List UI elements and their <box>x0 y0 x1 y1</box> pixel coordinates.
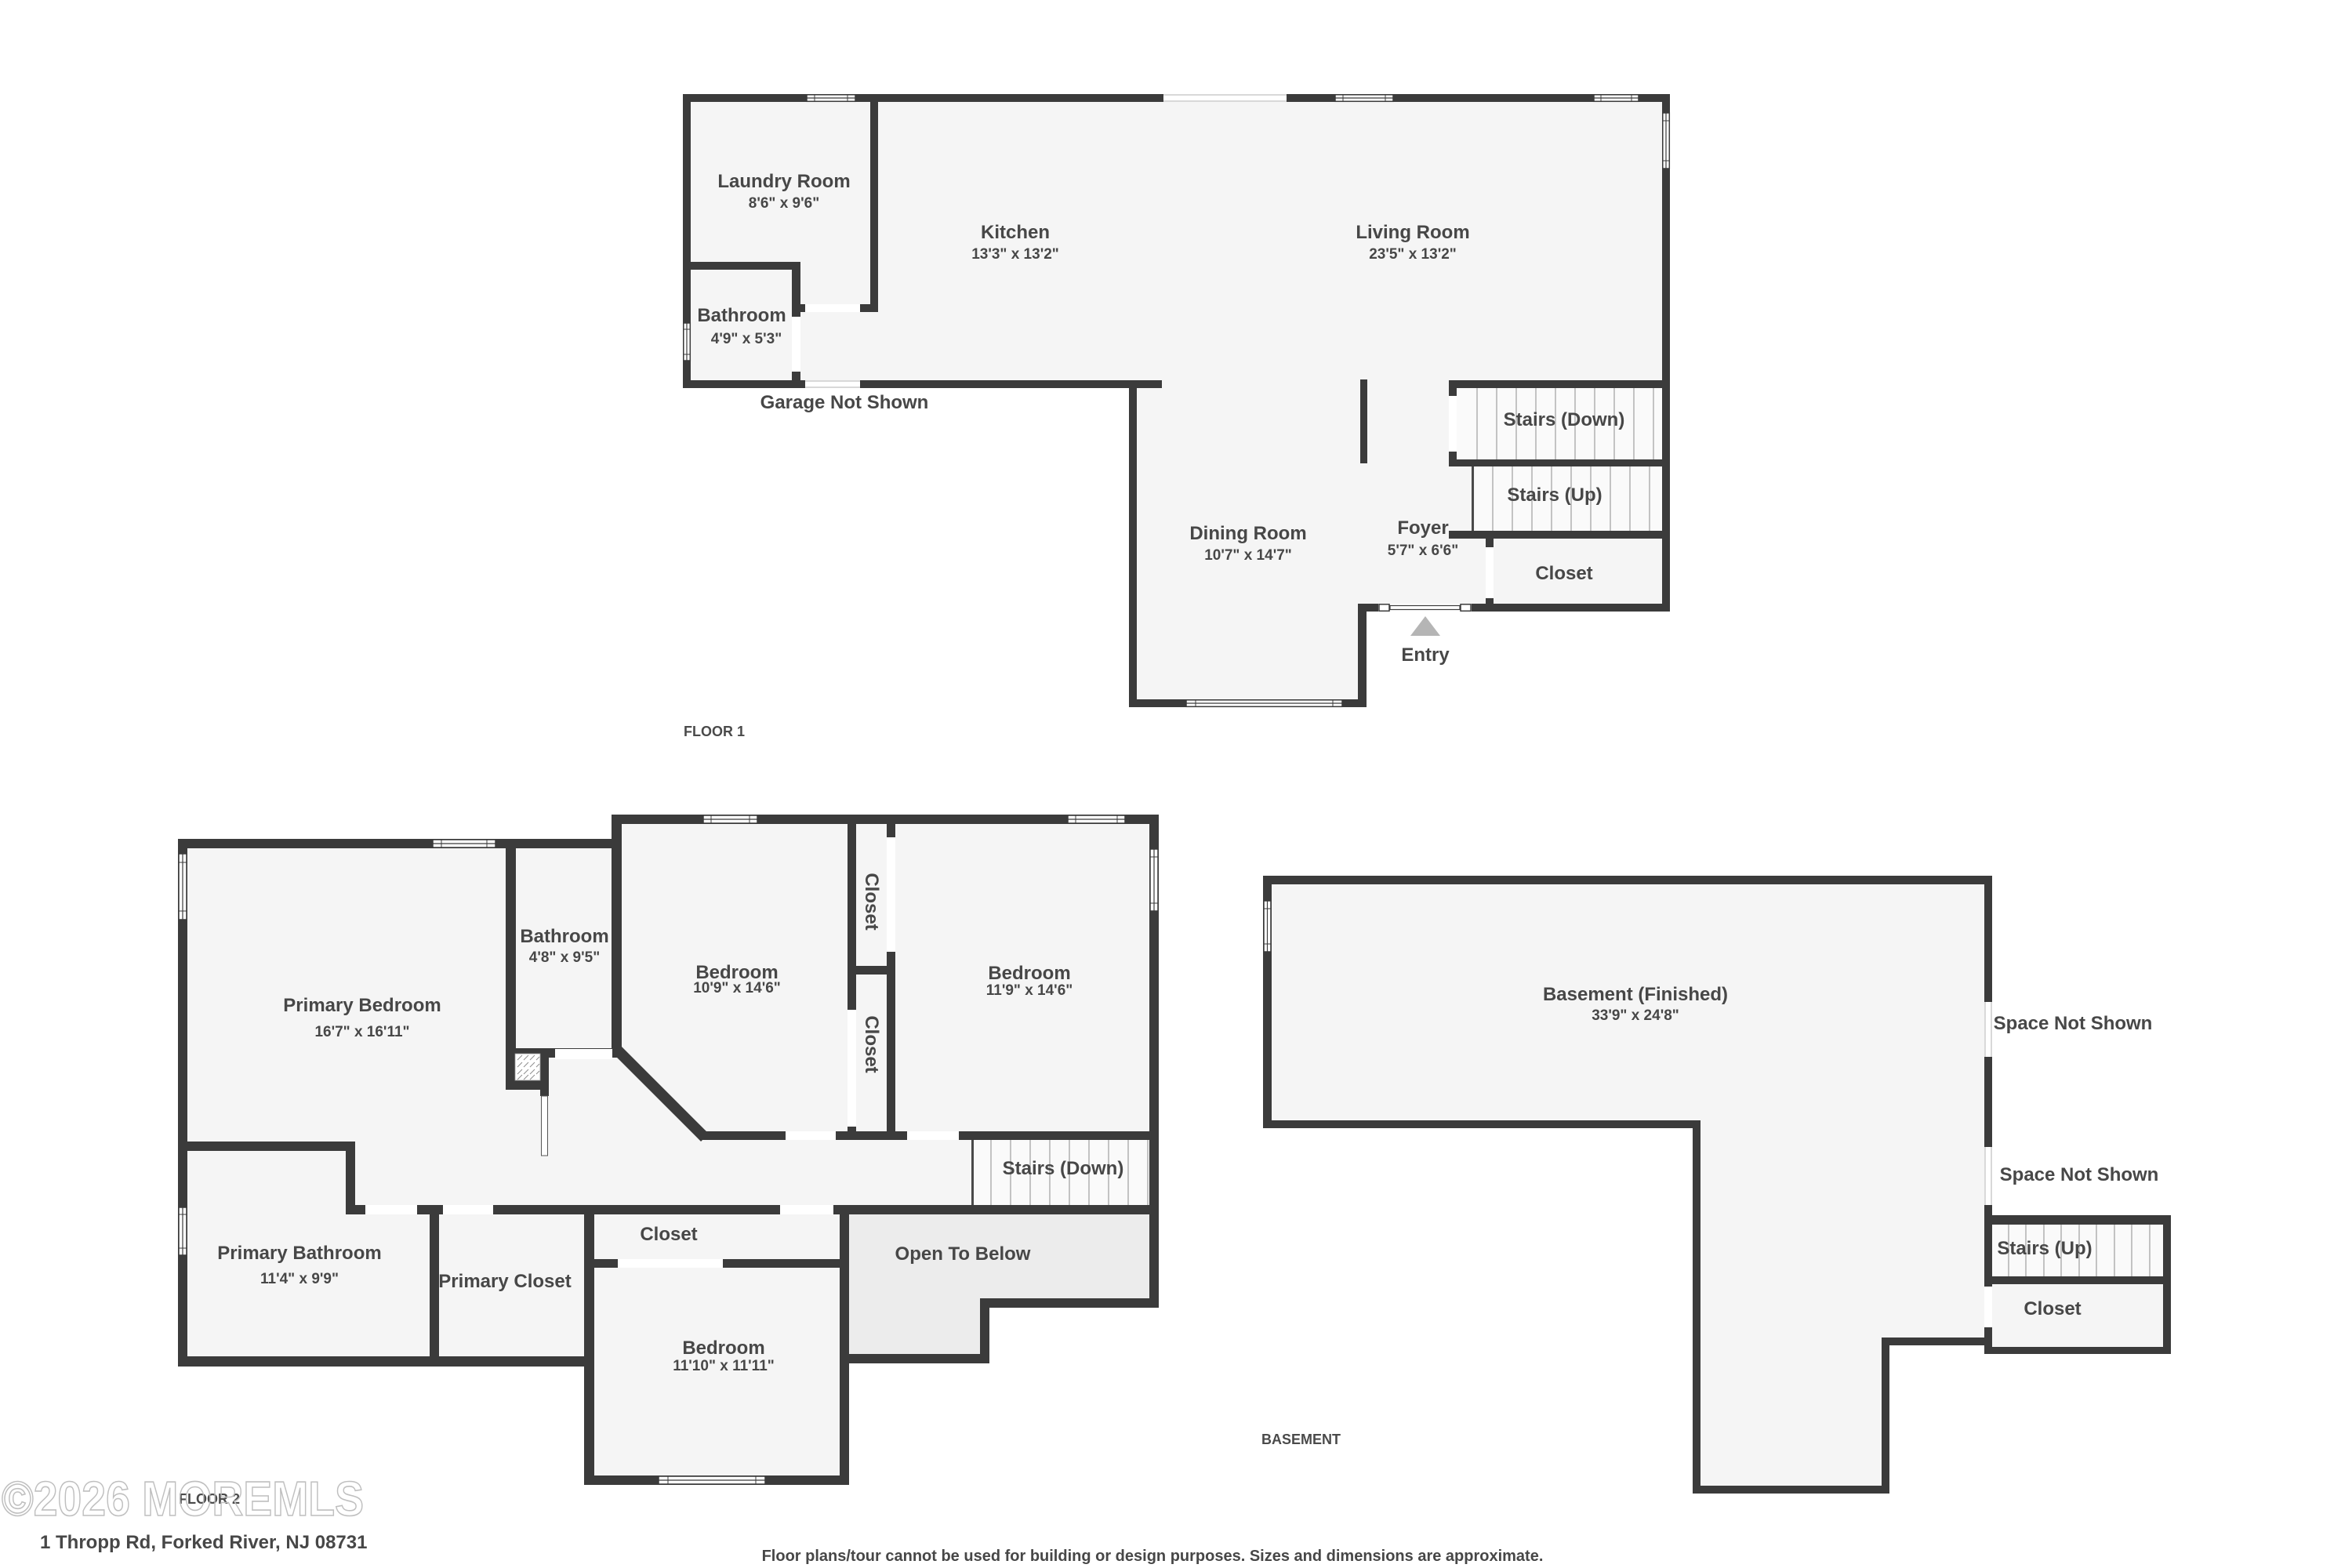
svg-text:Laundry Room: Laundry Room <box>717 171 850 192</box>
svg-text:Floor plans/tour cannot be use: Floor plans/tour cannot be used for buil… <box>762 1548 1544 1565</box>
svg-text:Space Not Shown: Space Not Shown <box>1994 1013 2153 1034</box>
svg-text:Foyer: Foyer <box>1397 517 1448 539</box>
svg-text:Bathroom: Bathroom <box>697 305 786 326</box>
svg-text:11'10" x 11'11": 11'10" x 11'11" <box>673 1358 775 1374</box>
svg-text:Closet: Closet <box>1535 563 1592 584</box>
svg-text:8'6" x 9'6": 8'6" x 9'6" <box>749 195 819 212</box>
svg-text:4'9" x 5'3": 4'9" x 5'3" <box>711 331 782 347</box>
svg-text:10'7" x 14'7": 10'7" x 14'7" <box>1204 547 1292 564</box>
svg-text:Bathroom: Bathroom <box>520 926 608 947</box>
svg-text:Stairs (Down): Stairs (Down) <box>1504 409 1625 430</box>
svg-text:23'5" x 13'2": 23'5" x 13'2" <box>1369 246 1457 263</box>
svg-text:Primary Bathroom: Primary Bathroom <box>217 1243 381 1264</box>
svg-text:13'3" x 13'2": 13'3" x 13'2" <box>971 246 1059 263</box>
svg-text:Closet: Closet <box>2024 1298 2081 1319</box>
svg-text:Living Room: Living Room <box>1356 222 1469 243</box>
svg-text:Primary Bedroom: Primary Bedroom <box>283 995 441 1016</box>
svg-text:Stairs (Up): Stairs (Up) <box>1997 1238 2092 1259</box>
svg-text:Space Not Shown: Space Not Shown <box>2000 1164 2159 1185</box>
svg-text:4'8" x 9'5": 4'8" x 9'5" <box>529 949 600 966</box>
svg-text:11'9" x 14'6": 11'9" x 14'6" <box>986 982 1073 999</box>
svg-text:Closet: Closet <box>640 1224 697 1245</box>
svg-text:Bedroom: Bedroom <box>988 963 1070 984</box>
svg-text:Open To Below: Open To Below <box>895 1243 1031 1265</box>
svg-text:11'4" x 9'9": 11'4" x 9'9" <box>260 1271 339 1287</box>
svg-text:Kitchen: Kitchen <box>981 222 1050 243</box>
svg-text:33'9" x 24'8": 33'9" x 24'8" <box>1592 1007 1679 1024</box>
svg-text:Basement (Finished): Basement (Finished) <box>1543 984 1728 1005</box>
svg-text:Dining Room: Dining Room <box>1189 523 1306 544</box>
svg-text:10'9" x 14'6": 10'9" x 14'6" <box>693 980 781 996</box>
svg-text:Stairs (Down): Stairs (Down) <box>1003 1158 1124 1179</box>
svg-text:1 Thropp Rd, Forked River, NJ: 1 Thropp Rd, Forked River, NJ 08731 <box>40 1532 367 1553</box>
svg-text:5'7" x 6'6": 5'7" x 6'6" <box>1388 543 1458 559</box>
svg-text:Stairs (Up): Stairs (Up) <box>1507 485 1602 506</box>
svg-text:Entry: Entry <box>1401 644 1450 666</box>
svg-text:16'7" x 16'11": 16'7" x 16'11" <box>314 1024 409 1040</box>
svg-text:FLOOR 1: FLOOR 1 <box>684 724 745 739</box>
svg-text:Bedroom: Bedroom <box>682 1338 764 1359</box>
svg-text:BASEMENT: BASEMENT <box>1261 1432 1341 1447</box>
svg-text:©2026 MOREMLS: ©2026 MOREMLS <box>2 1472 364 1526</box>
svg-text:Closet: Closet <box>861 1015 882 1073</box>
svg-text:Primary Closet: Primary Closet <box>438 1271 571 1292</box>
svg-text:Garage Not Shown: Garage Not Shown <box>760 392 929 413</box>
svg-text:Closet: Closet <box>861 873 882 930</box>
